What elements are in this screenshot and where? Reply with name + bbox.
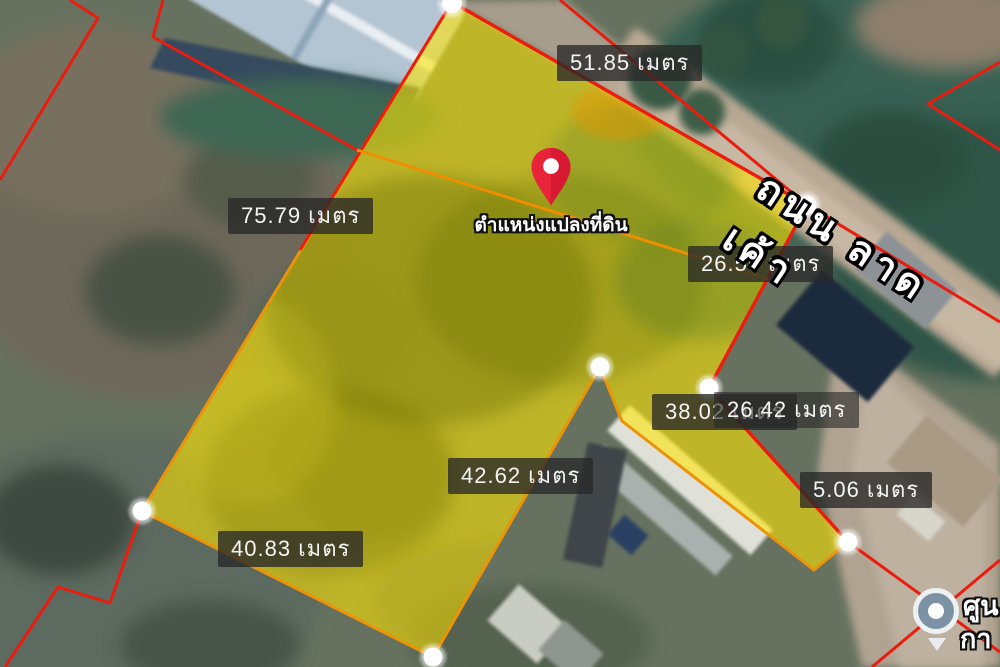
poi-label-line2: กา: [960, 617, 992, 660]
measurement-label-strip-end: 5.06 เมตร: [800, 472, 932, 508]
measurement-label-strip-b: 26.42 เมตร: [714, 392, 859, 428]
poi-center-dot: [928, 603, 944, 619]
plot-location-pin-icon[interactable]: [528, 146, 574, 208]
poi-marker-tip: [928, 638, 946, 651]
measurement-label-top: 51.85 เมตร: [557, 45, 702, 81]
measurement-label-left: 75.79 เมตร: [228, 198, 373, 234]
satellite-map[interactable]: 51.85 เมตร 75.79 เมตร 26.55 เมตร 38.02 เ…: [0, 0, 1000, 667]
measurement-label-bottom: 40.83 เมตร: [218, 531, 363, 567]
poi-circle-marker-icon[interactable]: [913, 588, 959, 634]
measurement-label-inner-right: 42.62 เมตร: [448, 458, 593, 494]
pin-caption: ตำแหน่งแปลงที่ดิน: [451, 210, 651, 240]
